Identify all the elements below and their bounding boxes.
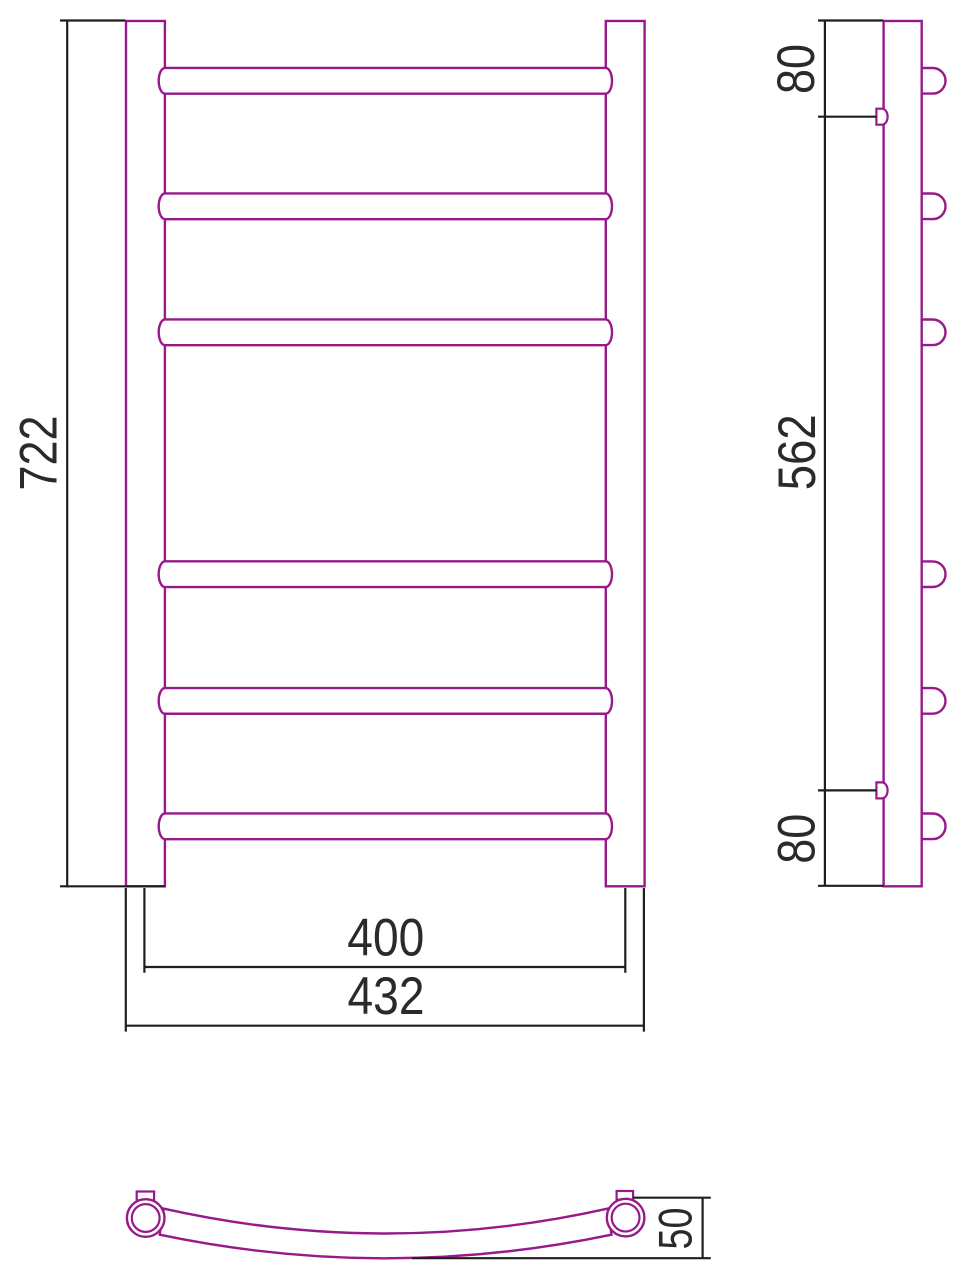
svg-text:50: 50 <box>650 1208 703 1250</box>
svg-text:432: 432 <box>348 967 425 1026</box>
svg-text:562: 562 <box>768 414 827 490</box>
svg-text:80: 80 <box>767 44 826 94</box>
svg-text:722: 722 <box>9 416 68 491</box>
svg-text:80: 80 <box>768 814 827 864</box>
svg-text:400: 400 <box>347 908 424 967</box>
